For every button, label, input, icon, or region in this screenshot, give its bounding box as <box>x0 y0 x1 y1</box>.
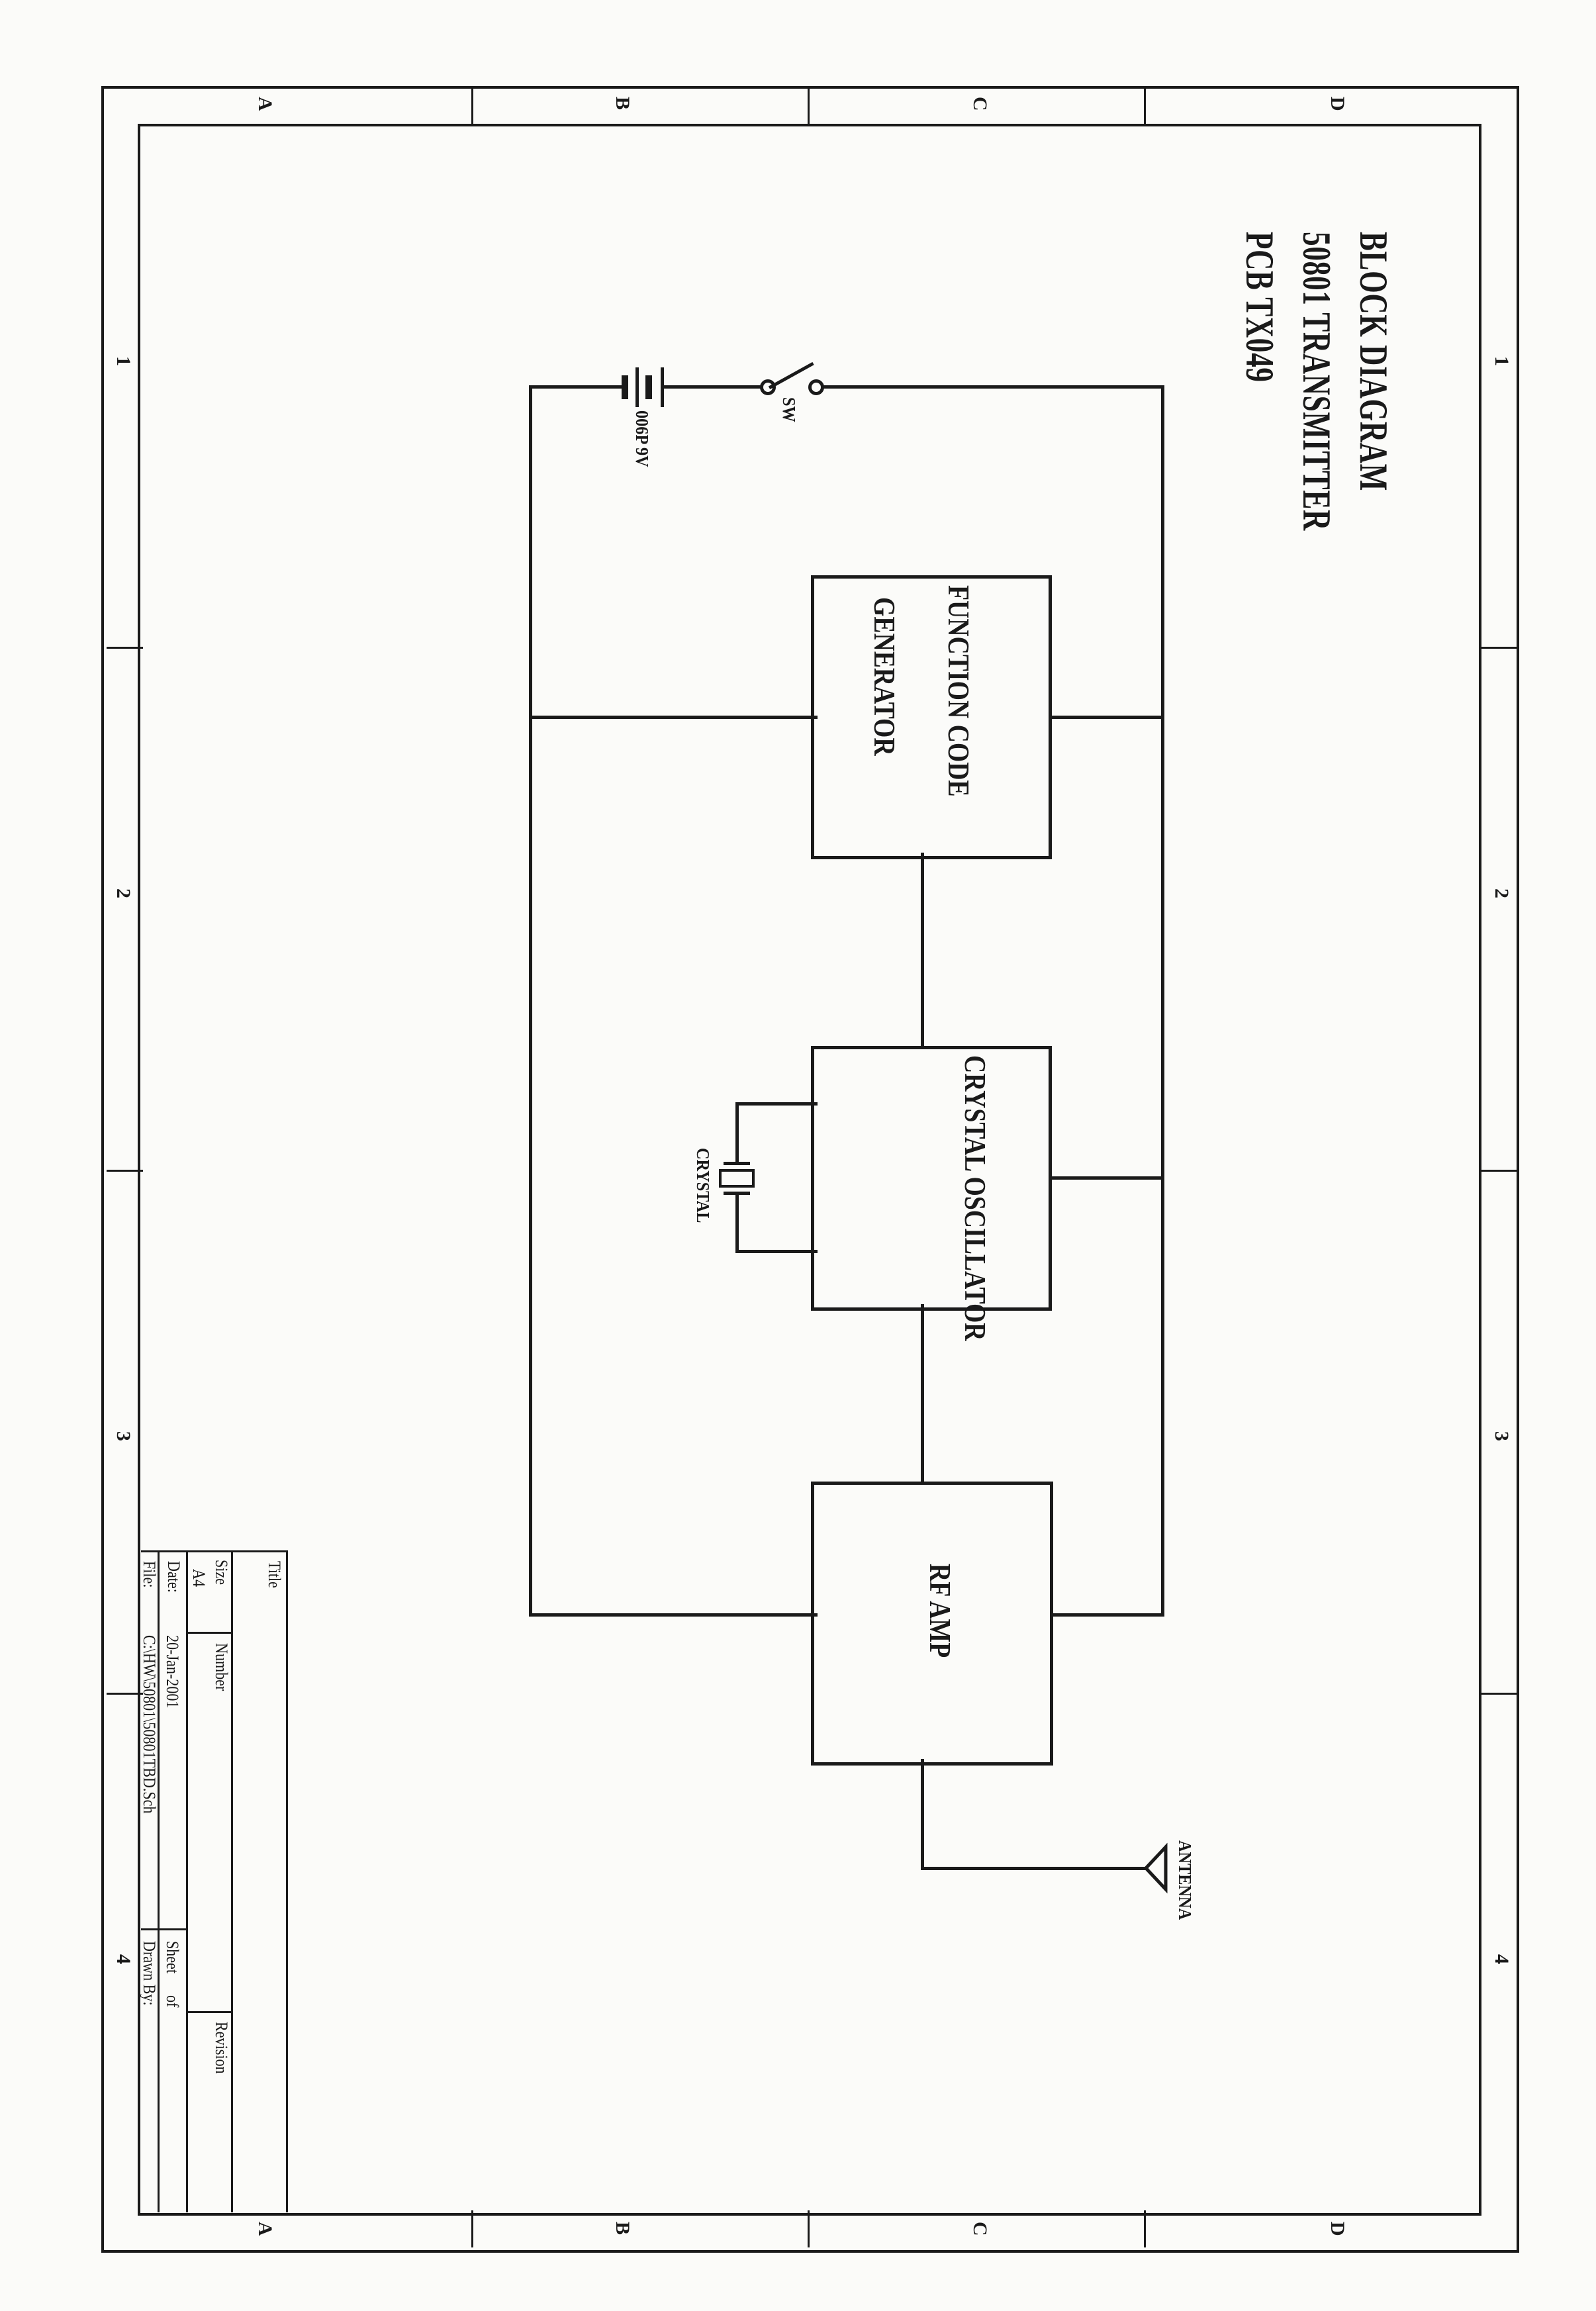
wire-left-chain-upper <box>823 385 1164 389</box>
titleblock-title-label: Title <box>265 1561 283 1588</box>
wire-switch-to-battery <box>663 385 762 389</box>
titleblock-drawn-by-label: Drawn By: <box>140 1941 158 2006</box>
zone-number-bottom: 3 <box>113 1431 133 1441</box>
titleblock-date-value: 20-Jan-2001 <box>164 1635 181 1708</box>
titleblock-col-date-sheet <box>141 1928 188 1930</box>
zone-letter-left: A <box>255 97 275 111</box>
crystal-plate-left <box>724 1162 750 1165</box>
zone-number-bottom: 2 <box>113 888 133 898</box>
wire-co-to-rf <box>921 1304 924 1485</box>
zone-letter-right: B <box>612 2222 632 2235</box>
wire-crystal-right <box>735 1193 739 1253</box>
zone-tick <box>1481 647 1519 649</box>
zone-tick <box>1144 2210 1146 2247</box>
titleblock-number-label: Number <box>212 1643 230 1691</box>
titleblock-date-label: Date: <box>165 1561 182 1593</box>
titleblock-file-value: C:\HW\50801\50801TBD.Sch <box>140 1635 158 1814</box>
zone-tick <box>107 1170 143 1172</box>
wire-fcg-to-co <box>921 853 924 1049</box>
battery-plate-long <box>635 367 639 407</box>
zone-tick <box>107 647 143 649</box>
zone-letter-right: A <box>255 2222 275 2236</box>
zone-tick <box>1481 1693 1519 1695</box>
titleblock-col-number-revision <box>186 2011 233 2013</box>
zone-number-top: 3 <box>1491 1431 1511 1441</box>
wire-bottom-rail <box>529 385 532 1617</box>
wire-rf-to-antenna <box>921 1759 924 1870</box>
battery-plate-long-top <box>661 367 664 407</box>
zone-tick <box>808 86 810 124</box>
zone-number-bottom: 4 <box>113 1954 133 1964</box>
wire-crystal-stub-left <box>735 1102 818 1106</box>
titleblock-sheet-label: Sheet <box>164 1941 181 1973</box>
wire-rf-top-tap <box>1050 1613 1162 1617</box>
block-label-rf-amp: RF AMP <box>925 1564 955 1658</box>
titleblock-col-size-number <box>186 1632 233 1634</box>
zone-tick <box>1481 1170 1519 1172</box>
titleblock-row-divider-1 <box>231 1550 233 2212</box>
wire-co-top-tap <box>1050 1176 1162 1180</box>
zone-number-top: 1 <box>1491 356 1511 366</box>
zone-letter-left: D <box>1327 97 1347 111</box>
wire-fcg-top-tap <box>1050 716 1162 719</box>
battery-plate-short <box>645 375 652 399</box>
titleblock-top-edge <box>286 1550 288 2212</box>
wire-crystal-stub-right <box>735 1250 818 1253</box>
titleblock-size-value: A4 <box>190 1569 207 1587</box>
schematic-sheet: 1 2 3 4 1 2 3 4 D C B A D C B A BLOCK DI… <box>0 0 1596 2311</box>
switch-terminal-top <box>808 379 824 395</box>
crystal-body <box>719 1169 755 1188</box>
block-function-code-generator <box>811 575 1052 859</box>
zone-tick <box>471 2210 473 2247</box>
drawing-title-line3: PCB TX049 <box>1240 232 1280 383</box>
zone-letter-right: D <box>1327 2222 1347 2236</box>
wire-top-rail <box>1161 385 1164 1617</box>
wire-fcg-bottom-tap <box>530 716 818 719</box>
titleblock-size-label: Size <box>212 1560 230 1585</box>
zone-letter-left: C <box>970 97 990 111</box>
zone-tick <box>107 1693 143 1695</box>
wire-crystal-left <box>735 1102 739 1165</box>
block-crystal-oscillator <box>811 1046 1052 1311</box>
drawing-title-line2: 50801 TRANSMITTER <box>1297 232 1337 531</box>
zone-tick <box>471 86 473 124</box>
wire-battery-to-rail <box>529 385 623 389</box>
zone-letter-right: C <box>970 2222 990 2236</box>
block-label-crystal-oscillator: CRYSTAL OSCILLATOR <box>960 1055 990 1341</box>
block-label-generator: GENERATOR <box>869 597 900 756</box>
titleblock-row-divider-2 <box>186 1550 188 2212</box>
wire-antenna-riser <box>921 1867 1149 1870</box>
titleblock-file-label: File: <box>140 1561 158 1588</box>
antenna-label: ANTENNA <box>1176 1840 1194 1920</box>
zone-number-bottom: 1 <box>113 356 133 366</box>
zone-tick <box>808 2210 810 2247</box>
crystal-label: CRYSTAL <box>694 1148 712 1223</box>
scanned-schematic-page: 1 2 3 4 1 2 3 4 D C B A D C B A BLOCK DI… <box>0 0 1596 2311</box>
crystal-plate-right <box>724 1192 750 1195</box>
zone-number-top: 2 <box>1491 888 1511 898</box>
switch-label: SW <box>780 397 798 422</box>
zone-letter-left: B <box>612 97 632 110</box>
titleblock-of-label: of <box>164 1995 181 2007</box>
inner-border <box>138 124 1481 2216</box>
zone-tick <box>1144 86 1146 124</box>
titleblock-left-edge <box>141 1550 288 1552</box>
titleblock-revision-label: Revision <box>212 2022 230 2074</box>
battery-label: 006P 9V <box>633 410 651 467</box>
wire-rf-bottom-tap <box>530 1613 818 1617</box>
zone-number-top: 4 <box>1491 1954 1511 1964</box>
antenna-icon <box>1142 1842 1171 1895</box>
battery-plate-short-bottom <box>622 375 628 399</box>
drawing-title-line1: BLOCK DIAGRAM <box>1354 232 1393 491</box>
block-label-function-code: FUNCTION CODE <box>943 585 974 797</box>
